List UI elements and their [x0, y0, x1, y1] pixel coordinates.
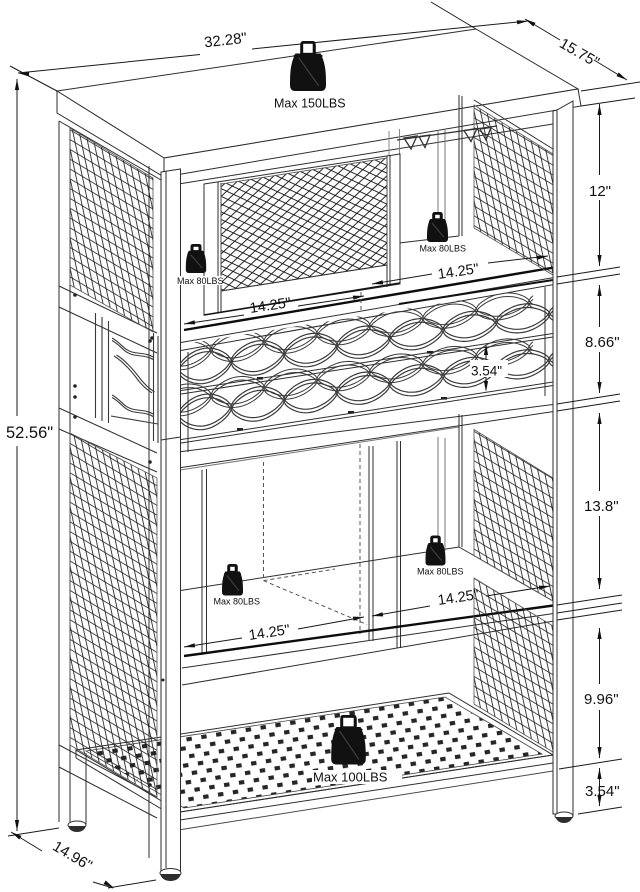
svg-text:Max 100LBS: Max 100LBS — [313, 770, 388, 785]
svg-text:3.54": 3.54" — [585, 783, 620, 800]
svg-text:9.96": 9.96" — [584, 691, 619, 708]
svg-text:Max 80LBS: Max 80LBS — [214, 597, 261, 607]
svg-text:3.54": 3.54" — [471, 364, 502, 379]
svg-text:13.8": 13.8" — [584, 498, 619, 515]
svg-text:52.56": 52.56" — [6, 424, 53, 442]
svg-text:Max 80LBS: Max 80LBS — [177, 276, 224, 286]
svg-text:12": 12" — [589, 183, 611, 200]
svg-text:Max 150LBS: Max 150LBS — [274, 97, 346, 111]
svg-text:Max 80LBS: Max 80LBS — [417, 567, 464, 577]
svg-text:8.66": 8.66" — [585, 334, 620, 351]
svg-text:Max 80LBS: Max 80LBS — [420, 244, 467, 254]
